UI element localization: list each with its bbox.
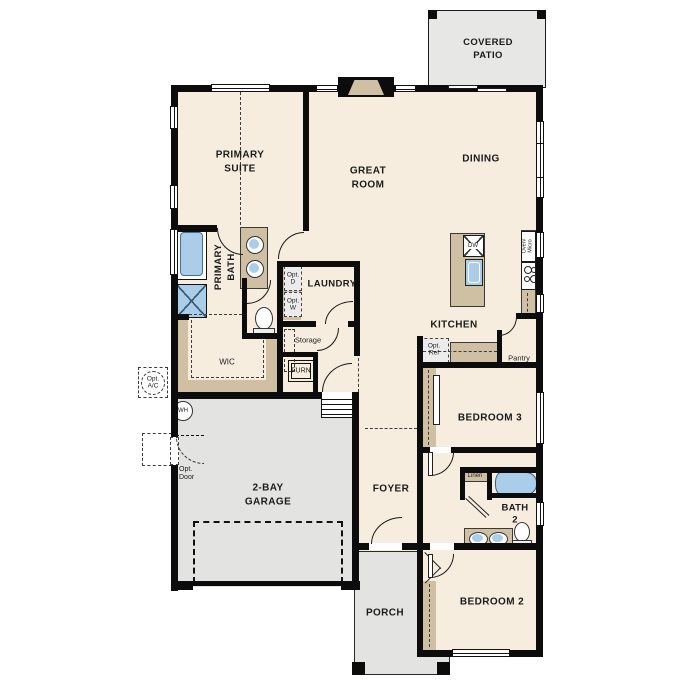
door-opening: [322, 392, 352, 399]
wall: [460, 467, 465, 500]
wall: [277, 261, 283, 397]
window: [536, 121, 544, 144]
porch-post: [437, 662, 450, 675]
patio-post: [428, 10, 437, 19]
room-label-great-room: GREAT ROOM: [350, 165, 386, 192]
bathtub-2: [495, 472, 537, 495]
window: [452, 649, 510, 657]
window: [170, 185, 178, 209]
island-sink: [465, 259, 483, 286]
wall: [171, 581, 193, 590]
hall-opening-line: [358, 353, 359, 392]
room-label-foyer: FOYER: [373, 482, 409, 496]
door-opening: [430, 543, 454, 550]
wall: [417, 336, 423, 550]
garage-steps: [321, 399, 353, 418]
opt-door-leaf: [176, 435, 204, 436]
patio-post: [537, 10, 546, 19]
wall: [283, 261, 359, 267]
toilet-primary: [255, 307, 273, 330]
door-leaf: [428, 554, 433, 578]
label-linen: Linen: [468, 473, 483, 479]
window: [536, 232, 544, 258]
wic-shelf-east: [266, 338, 277, 382]
window: [536, 294, 544, 313]
kitchen-counter-south: [450, 342, 498, 363]
wall: [242, 333, 282, 339]
wall: [171, 314, 189, 320]
window: [170, 106, 178, 129]
wall: [352, 392, 359, 587]
sliding-door-panel: [448, 85, 478, 89]
wall: [313, 357, 318, 397]
label-storage: Storage: [295, 336, 321, 345]
label-opt-refrigerator: Opt. Ref: [428, 343, 440, 358]
room-label-garage: 2-BAY GARAGE: [245, 482, 291, 509]
label-pantry: Pantry: [508, 354, 530, 363]
window: [536, 143, 544, 178]
window: [316, 85, 338, 92]
label-opt-washer: Opt. W: [287, 298, 299, 313]
room-label-dining: DINING: [462, 152, 499, 166]
room-label-primary-suite: PRIMARY SUITE: [216, 149, 265, 176]
window: [536, 392, 544, 444]
sink-basin: [468, 262, 480, 283]
window: [395, 85, 416, 92]
bathtub-primary: [176, 228, 207, 280]
window: [536, 502, 544, 526]
wall: [341, 581, 360, 590]
wic-shelf-south: [177, 380, 277, 392]
sink-basin: [249, 239, 259, 249]
room-label-bedroom-3: BEDROOM 3: [458, 411, 522, 425]
label-oven-micro: Oven/ Micro: [522, 239, 535, 254]
wall: [283, 321, 316, 327]
room-label-covered-patio: COVERED PATIO: [463, 37, 513, 63]
label-dishwasher: DW: [467, 243, 479, 249]
room-label-bath-2: BATH 2: [502, 503, 529, 528]
wall: [516, 313, 543, 319]
floor-plan: COVERED PATIO PRIMARY SUITE GREAT ROOM D…: [0, 0, 687, 687]
wall: [303, 85, 309, 231]
sink-basin: [492, 534, 503, 542]
wall: [491, 493, 543, 498]
room-label-bedroom-2: BEDROOM 2: [460, 595, 524, 609]
opt-door-box: [142, 433, 172, 466]
window: [536, 177, 544, 198]
room-label-wic: WIC: [219, 358, 235, 367]
sink-basin: [249, 263, 259, 273]
fireplace-insert: [348, 80, 384, 95]
label-water-heater: WH: [178, 408, 188, 414]
window: [170, 229, 178, 275]
porch-post: [352, 662, 365, 675]
closet-rod-line: [429, 584, 430, 647]
wic-shelf-west: [177, 318, 188, 384]
room-label-porch: PORCH: [366, 606, 404, 620]
wall: [171, 85, 178, 591]
label-opt-dryer: Opt. D: [287, 272, 299, 287]
label-furnace: FURN: [291, 368, 310, 375]
door-opening: [369, 543, 402, 550]
label-opt-ac: Opt. A/C: [147, 376, 159, 391]
closet-rod-line: [428, 370, 429, 445]
sliding-door-panel: [477, 88, 507, 92]
foyer-arch-line: [365, 428, 417, 429]
room-label-primary-bath: PRIMARY BATH: [213, 244, 239, 290]
door-leaf: [428, 452, 433, 476]
room-label-laundry: LAUNDRY: [308, 279, 357, 292]
cooktop: [521, 262, 536, 290]
tub-basin: [180, 232, 203, 276]
garage-door-outline: [193, 521, 343, 583]
storage-opt-box: [284, 329, 295, 372]
sink-basin: [472, 534, 483, 542]
fireplace: [338, 77, 394, 97]
closet-slider-door: [433, 375, 440, 425]
wall: [277, 352, 318, 357]
wall: [354, 261, 360, 356]
wall: [417, 362, 543, 368]
garage-door-header: [193, 581, 341, 586]
window: [211, 84, 270, 92]
wall: [417, 543, 423, 657]
shower: [176, 284, 207, 318]
opening-line: [189, 314, 242, 315]
room-label-kitchen: KITCHEN: [430, 318, 477, 332]
label-opt-door: Opt. Door: [179, 466, 194, 482]
